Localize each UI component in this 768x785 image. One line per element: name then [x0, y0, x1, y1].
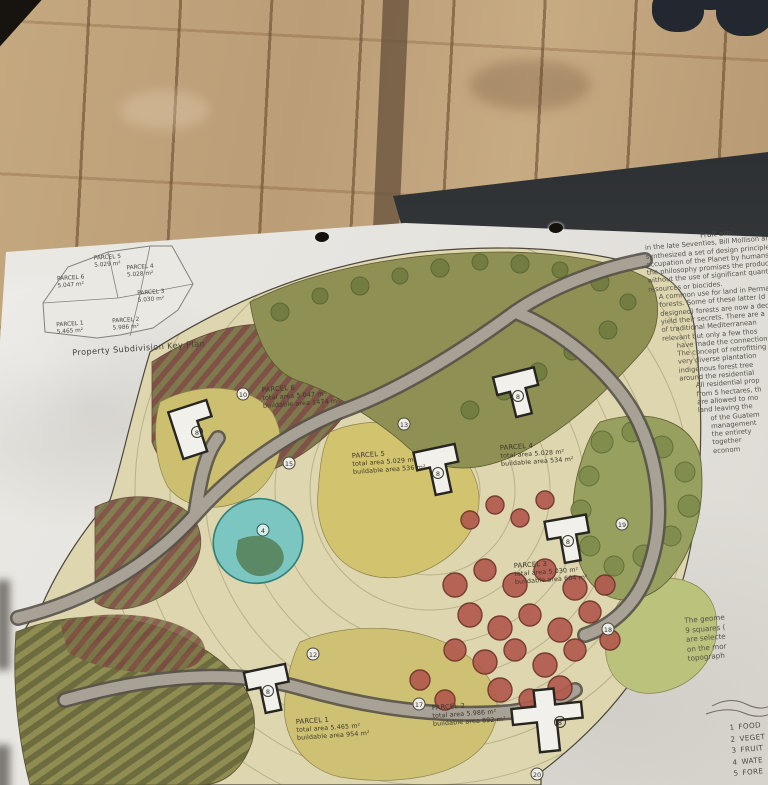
- description-paragraphs: Fruit arb in the late Seventies, Bill Mo…: [644, 226, 768, 460]
- ref-marker: 12: [309, 651, 317, 659]
- house-1-marker: 8: [266, 688, 270, 696]
- ref-marker: 10: [239, 391, 247, 399]
- ref-marker: 20: [533, 771, 541, 779]
- ref-marker: 18: [604, 626, 612, 634]
- house-3-marker: 8: [566, 538, 570, 546]
- ref-marker: 17: [415, 701, 423, 709]
- photo-of-site-plan: 4 8 8: [0, 0, 768, 785]
- house-6-marker: 8: [195, 429, 199, 437]
- ref-marker: 15: [285, 460, 293, 468]
- map-legend: 1FOOD 2VEGET 3FRUIT 4WATE 5FORE: [729, 719, 768, 779]
- house-5-marker: 8: [436, 470, 440, 478]
- key-plan: PARCEL 5 5.029 m² PARCEL 4 5.028 m² PARC…: [43, 246, 206, 358]
- pond-marker: 4: [261, 527, 265, 535]
- house-4-marker: 8: [516, 393, 520, 401]
- ref-marker: 13: [400, 421, 408, 429]
- ref-marker: 19: [618, 521, 626, 529]
- section-sketch: [706, 700, 768, 716]
- site-plan-drawing: 4 8 8: [0, 0, 768, 785]
- house-2-marker: 8: [558, 719, 562, 727]
- geometry-note: The geome 9 squares ( are selecte on the…: [684, 612, 728, 663]
